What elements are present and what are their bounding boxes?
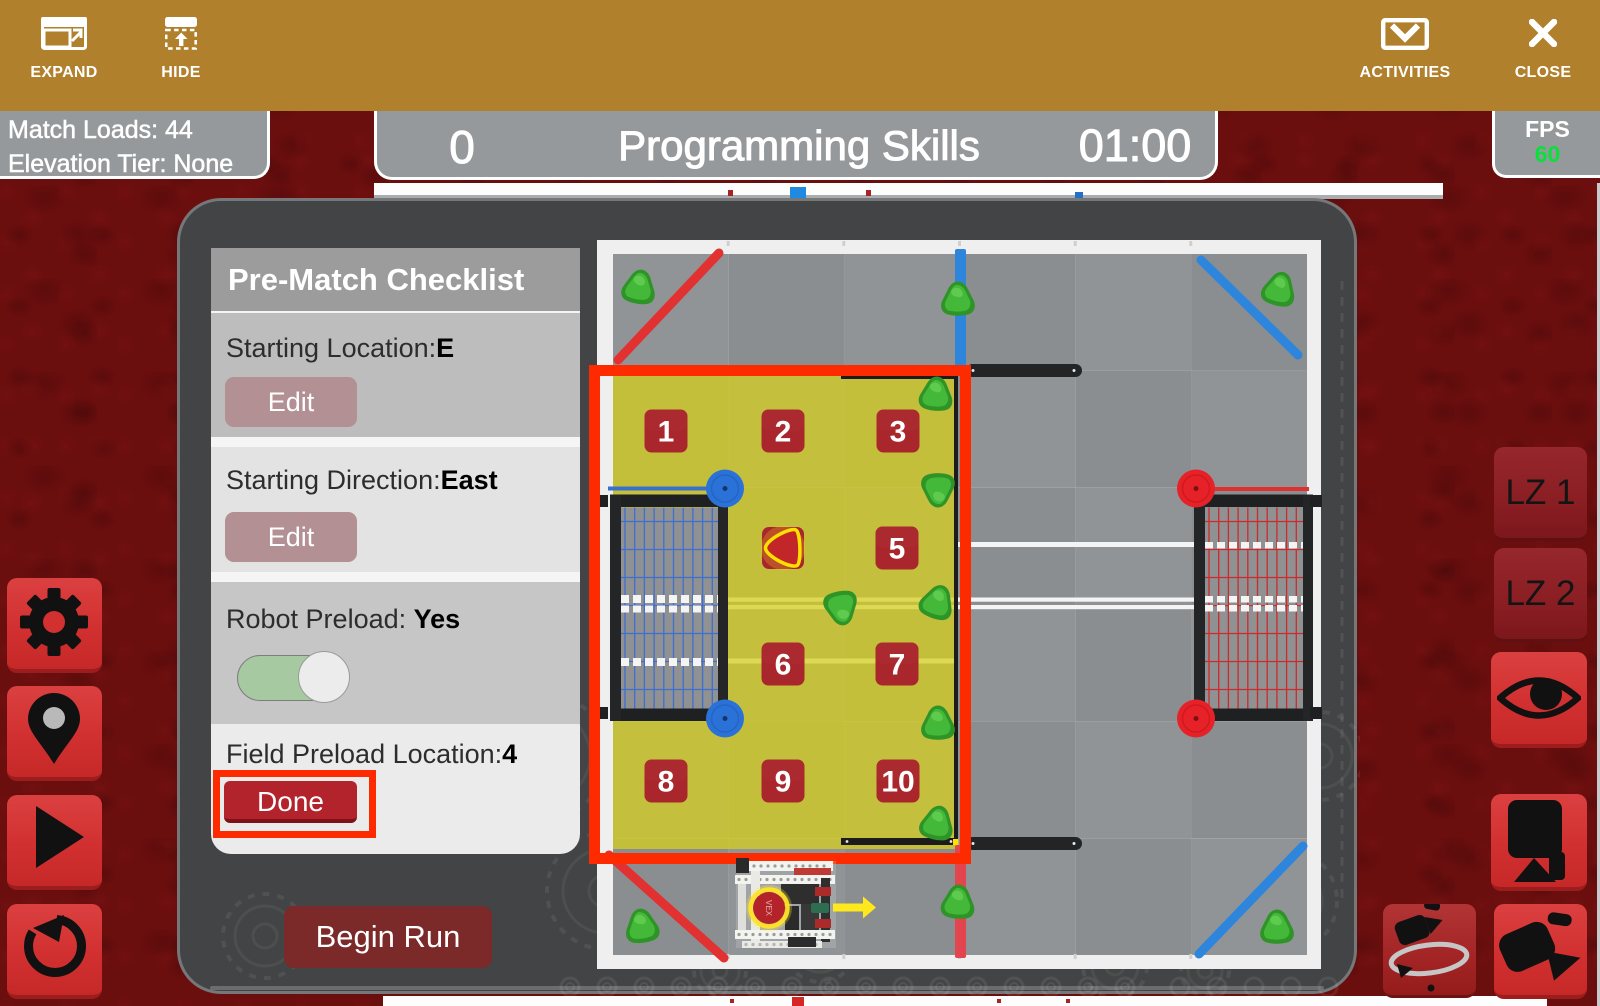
svg-text:2: 2 [775,416,792,449]
svg-text:8: 8 [658,766,675,799]
svg-text:5: 5 [889,533,906,566]
svg-text:7: 7 [889,649,906,682]
svg-text:3: 3 [890,416,907,449]
svg-text:VEX: VEX [764,900,773,917]
svg-text:10: 10 [881,766,914,799]
svg-text:6: 6 [775,649,792,682]
svg-text:9: 9 [775,766,792,799]
svg-text:1: 1 [658,416,675,449]
